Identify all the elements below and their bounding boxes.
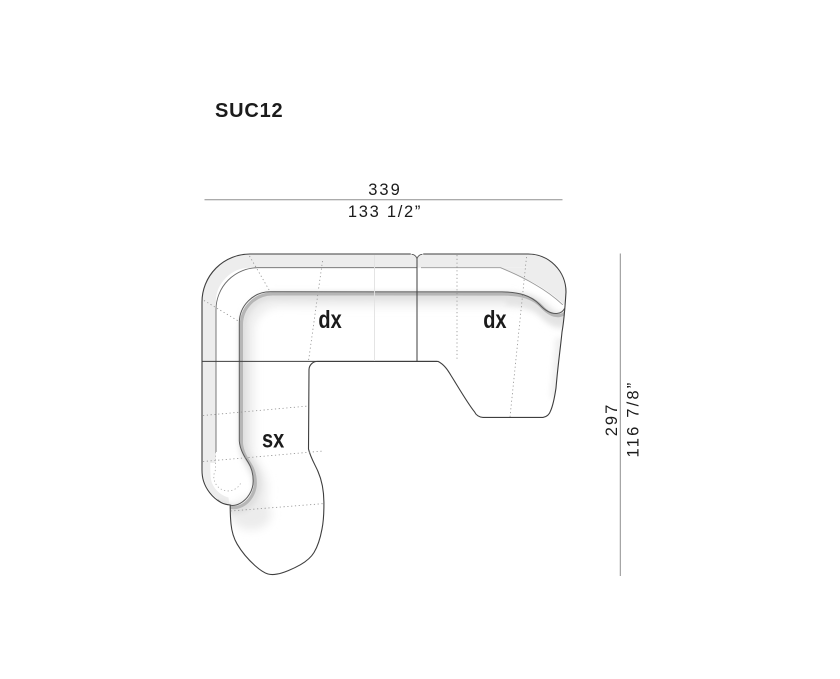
svg-text:dx: dx [318, 306, 342, 334]
svg-text:dx: dx [483, 306, 507, 334]
svg-text:sx: sx [262, 425, 285, 453]
svg-text:297: 297 [603, 403, 621, 437]
svg-text:SUC12: SUC12 [215, 100, 283, 122]
svg-text:133 1/2”: 133 1/2” [348, 203, 422, 221]
svg-text:116 7/8”: 116 7/8” [625, 381, 643, 458]
svg-text:339: 339 [368, 181, 402, 199]
